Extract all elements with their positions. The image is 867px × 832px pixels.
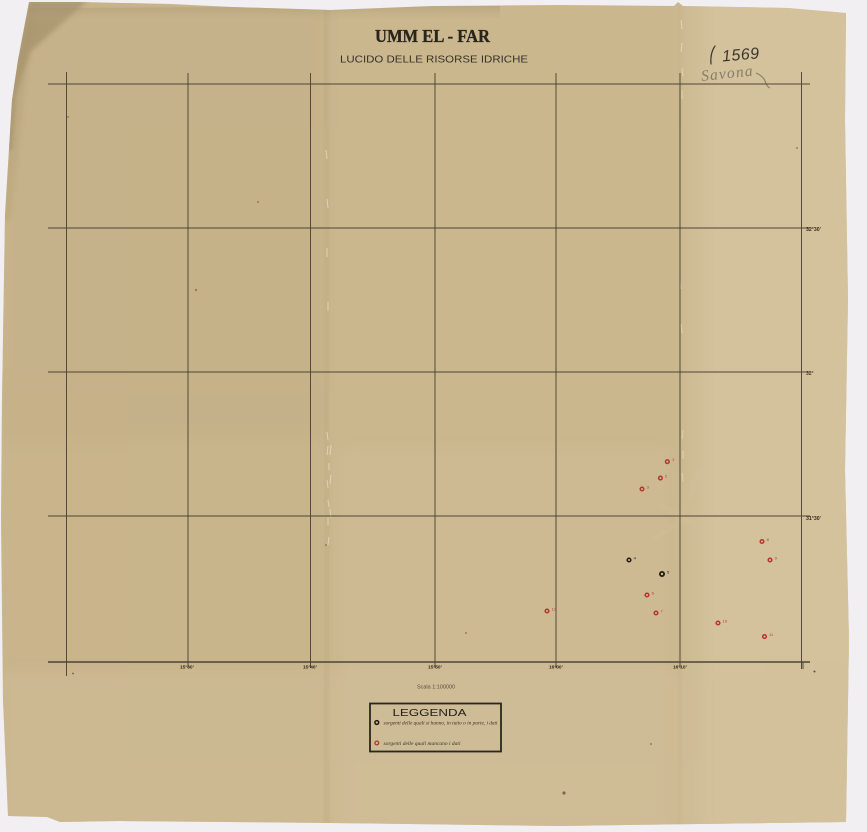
svg-text:32°30ʼ: 32°30ʼ	[806, 227, 822, 233]
svg-text:LUCIDO DELLE RISORSE IDRICHE: LUCIDO DELLE RISORSE IDRICHE	[340, 54, 528, 66]
svg-text:Scala 1:100000: Scala 1:100000	[417, 685, 455, 691]
svg-text:UMM EL - FAR: UMM EL - FAR	[375, 26, 491, 46]
svg-text:10: 10	[723, 619, 728, 624]
svg-text:15°50ʼ: 15°50ʼ	[428, 665, 442, 671]
svg-text:sorgenti delle quali si hanno,: sorgenti delle quali si hanno, in tutto …	[384, 722, 499, 727]
svg-text:15°30ʼ: 15°30ʼ	[180, 665, 194, 671]
svg-text:12: 12	[552, 607, 557, 612]
svg-text:16°00ʼ: 16°00ʼ	[549, 665, 563, 671]
svg-text:sorgenti delle quali mancano: sorgenti delle quali mancano i dati	[384, 742, 462, 747]
svg-text:15°40ʼ: 15°40ʼ	[303, 665, 317, 671]
svg-text:31°30ʼ: 31°30ʼ	[806, 516, 822, 522]
svg-text:32°: 32°	[806, 371, 814, 377]
svg-text:LEGGENDA: LEGGENDA	[393, 708, 468, 719]
svg-text:1569: 1569	[721, 45, 760, 65]
svg-text:16°10ʼ: 16°10ʼ	[673, 665, 687, 671]
